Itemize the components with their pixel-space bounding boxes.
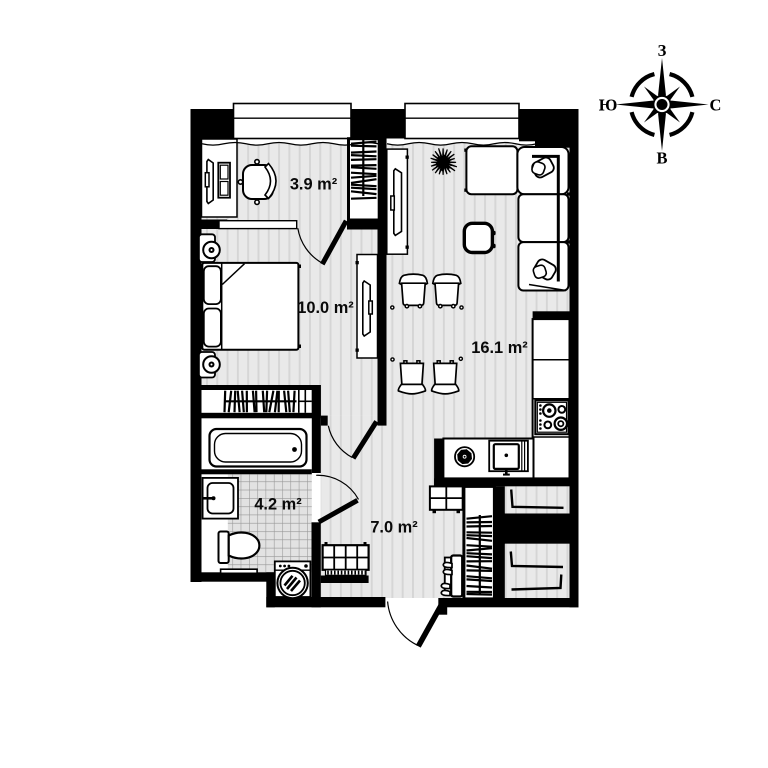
- svg-text:В: В: [656, 149, 667, 168]
- svg-text:10.0 m²: 10.0 m²: [297, 299, 354, 317]
- svg-text:16.1 m²: 16.1 m²: [471, 339, 528, 357]
- svg-text:З: З: [658, 41, 667, 60]
- svg-text:4.2 m²: 4.2 m²: [254, 495, 302, 513]
- svg-text:С: С: [710, 95, 722, 114]
- svg-text:7.0 m²: 7.0 m²: [370, 519, 418, 537]
- svg-text:3.9 m²: 3.9 m²: [290, 175, 338, 193]
- svg-text:Ю: Ю: [599, 95, 618, 114]
